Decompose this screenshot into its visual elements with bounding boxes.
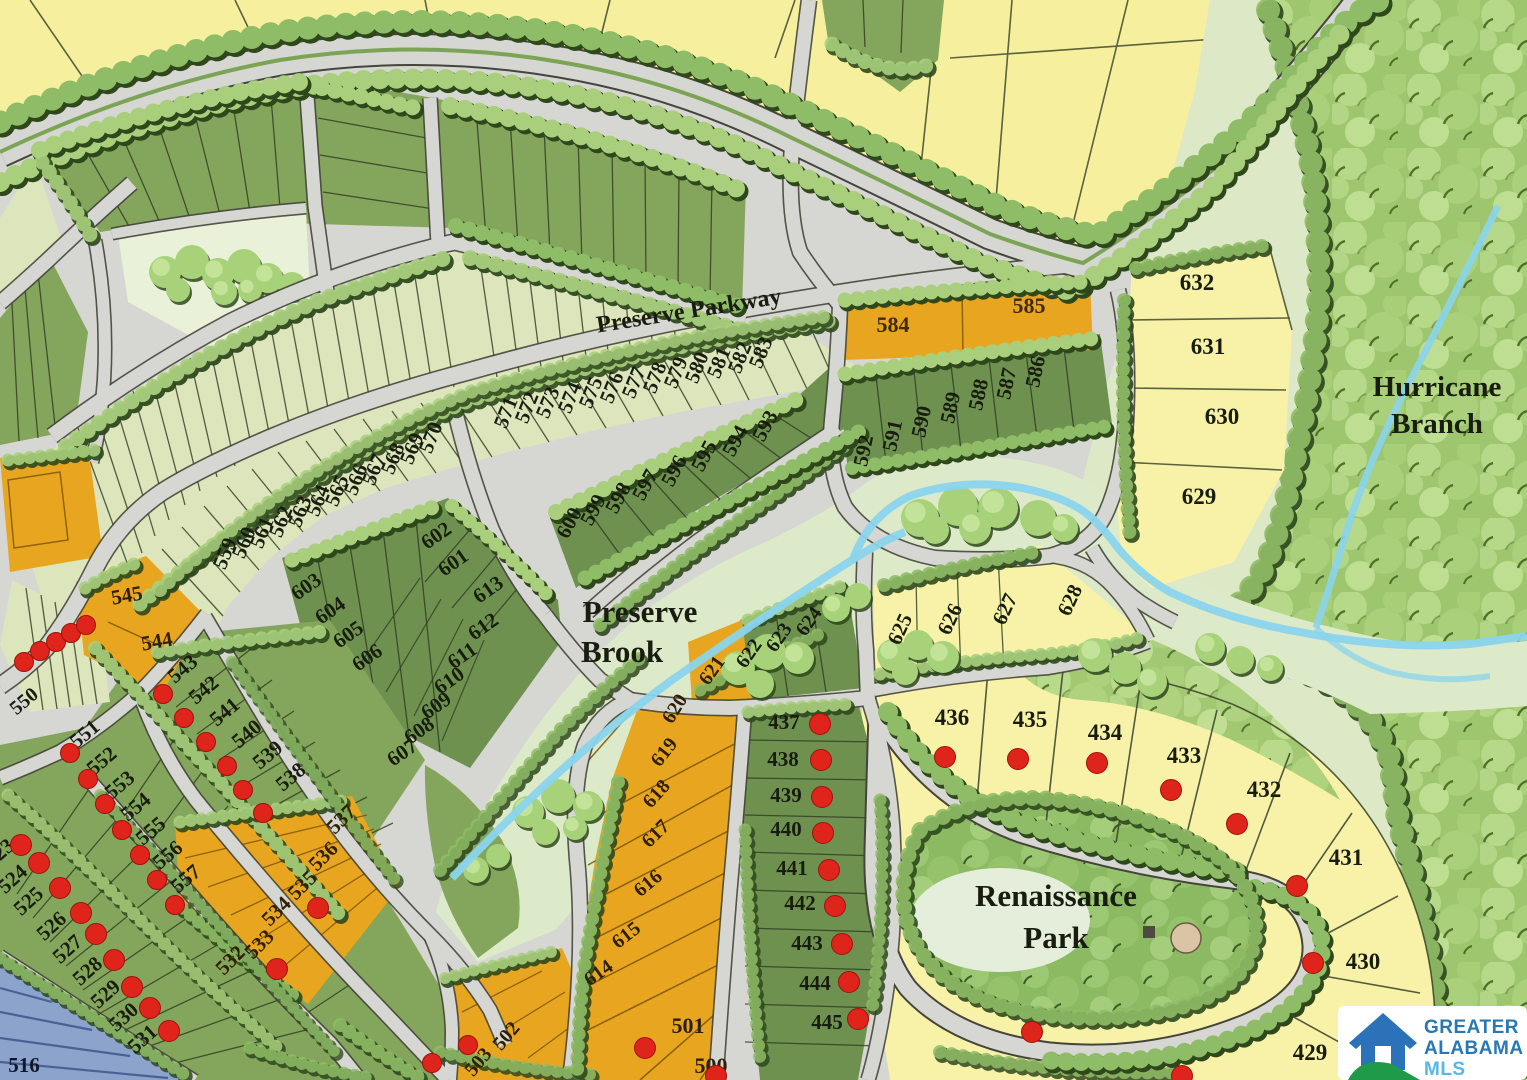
svg-text:Park: Park xyxy=(1023,920,1089,955)
svg-text:438: 438 xyxy=(767,747,799,771)
svg-text:MLS: MLS xyxy=(1424,1059,1466,1080)
svg-text:585: 585 xyxy=(1013,293,1046,318)
svg-text:435: 435 xyxy=(1013,707,1048,732)
svg-text:Renaissance: Renaissance xyxy=(975,878,1137,913)
svg-text:434: 434 xyxy=(1088,720,1123,745)
svg-text:632: 632 xyxy=(1180,270,1215,295)
svg-text:Hurricane: Hurricane xyxy=(1373,371,1502,403)
svg-text:630: 630 xyxy=(1205,404,1240,429)
svg-text:443: 443 xyxy=(791,931,823,955)
svg-text:436: 436 xyxy=(935,705,970,730)
svg-text:445: 445 xyxy=(811,1010,843,1034)
svg-text:584: 584 xyxy=(877,312,910,337)
svg-text:431: 431 xyxy=(1329,845,1364,870)
svg-text:441: 441 xyxy=(776,856,808,880)
svg-text:Branch: Branch xyxy=(1391,408,1483,440)
svg-text:430: 430 xyxy=(1346,949,1381,974)
svg-text:GREATER: GREATER xyxy=(1424,1017,1519,1038)
svg-text:439: 439 xyxy=(770,783,802,807)
svg-text:631: 631 xyxy=(1191,334,1226,359)
svg-text:442: 442 xyxy=(784,891,816,915)
svg-text:501: 501 xyxy=(672,1013,705,1038)
svg-text:437: 437 xyxy=(768,710,800,734)
svg-text:516: 516 xyxy=(8,1053,40,1077)
svg-text:444: 444 xyxy=(799,971,831,995)
svg-text:ALABAMA: ALABAMA xyxy=(1424,1038,1524,1059)
svg-text:433: 433 xyxy=(1167,743,1202,768)
svg-text:Preserve: Preserve xyxy=(583,594,698,629)
svg-text:432: 432 xyxy=(1247,777,1282,802)
svg-text:Brook: Brook xyxy=(581,634,664,669)
svg-text:429: 429 xyxy=(1293,1040,1328,1065)
svg-text:629: 629 xyxy=(1182,484,1217,509)
svg-text:440: 440 xyxy=(770,817,802,841)
